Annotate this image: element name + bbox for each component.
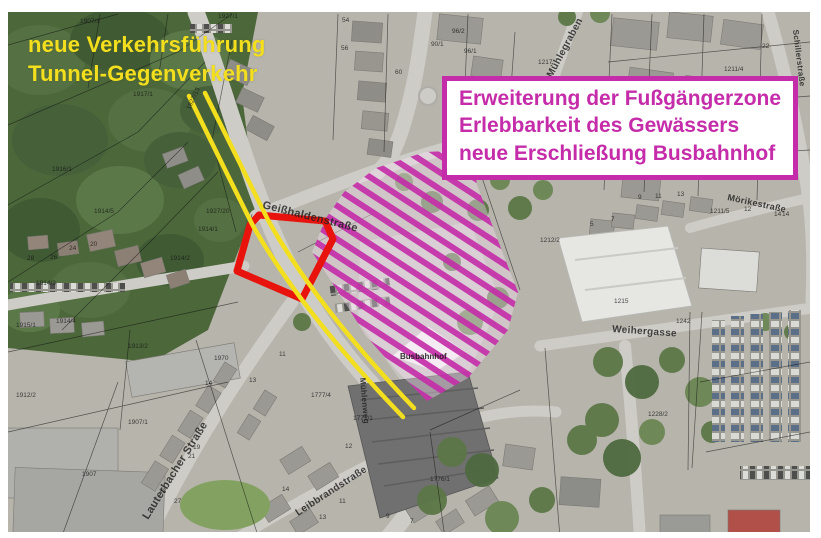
parcel-label: 1915/1 [16,322,36,329]
parcel-label: 1211/4 [724,66,744,73]
parcel-label: 1914/4 [56,318,76,325]
parcel-label: 1914/1 [198,226,218,233]
traffic-note-line-1: neue Verkehrsführung [28,30,266,59]
large-white-building [558,226,692,322]
parcel-label: 1912/2 [16,392,36,399]
parcel-label: 1927/20 [206,208,230,215]
parcel-label: 54 [342,17,350,24]
parcel-label: 22 [762,43,770,50]
parcel-label: 1916/1 [52,166,72,173]
parcel-label: 9 [638,194,642,201]
parcel-label: 1217 [538,59,553,66]
lawn [180,480,270,530]
parcel-label: 90/1 [431,41,444,48]
parcel-label: 23 [159,488,167,495]
parcel-label: 12 [345,443,353,450]
parcel-label: 1907/1 [128,419,148,426]
parcel-label: 1228/2 [648,411,668,418]
parcel-label: 1970 [214,355,229,362]
parcel-label: 96/1 [464,48,477,55]
parcel-label: 20 [90,241,98,248]
parcel-label: 28 [27,255,35,262]
parcel-label: 12 [744,206,752,213]
parcel-label: 11 [279,351,286,358]
parcel-label: 27 [174,498,182,505]
parcel-label: 1242 [676,318,691,325]
parcel-label: 26 [50,254,58,261]
parcel-label: 11 [339,498,346,505]
plan-note-line-2: Erlebbarkeit des Gewässers [459,112,781,139]
parcel-label: 5 [590,221,594,228]
planning-map: GeißhaldenstraßeMühlegrabenSchillerstraß… [0,0,821,538]
area-label: Busbahnhof [400,352,447,361]
parcel-label: 24 [69,245,77,252]
parcel-label: 1215 [614,298,629,305]
parcel-label: 9 [386,513,390,520]
parcel-label: 13 [319,514,327,521]
parcel-label: 1914/2 [170,255,190,262]
parcel-label: 14 [774,211,782,218]
parcel-label: 1913/2 [128,343,148,350]
parcel-label: 1914/5 [94,208,114,215]
parcel-label: 21 [188,453,196,460]
parcel-label: 60 [395,69,403,76]
parcel-label: 1927/1 [218,13,238,20]
plan-note-line-3: neue Erschließung Busbahnhof [459,140,781,167]
plan-note-box: Erweiterung der Fußgängerzone Erlebbarke… [442,76,798,180]
parcel-label: 1917/1 [133,91,153,98]
parcel-label: 13 [677,191,685,198]
parcel-label: 1914/3 [36,280,56,287]
plan-note-line-1: Erweiterung der Fußgängerzone [459,85,781,112]
parcel-label: 1777/4 [311,392,331,399]
parcel-label: 1771/1 [353,415,373,422]
parcel-label: 19 [193,444,201,451]
parcel-label: 1211/5 [710,208,730,215]
parcel-label: 13 [249,377,257,384]
parcel-label: 1907/3 [80,18,100,25]
traffic-note-line-2: Tunnel-Gegenverkehr [28,59,266,88]
parcel-label: 7 [611,216,615,223]
parcel-label: 11 [655,193,662,200]
parcel-label: 56 [341,45,349,52]
parcel-label: 1212/2 [540,237,560,244]
parcel-label: 7 [410,518,414,525]
roundabout [419,87,437,105]
traffic-note: neue Verkehrsführung Tunnel-Gegenverkehr [28,30,266,88]
parcel-label: 96/2 [452,28,465,35]
parcel-label: 1776/1 [430,476,450,483]
parcel-label: 14 [282,486,290,493]
parcel-label: 14 [782,211,790,218]
parcel-label: 1907 [82,471,97,478]
parcel-label: 14 [205,380,213,387]
